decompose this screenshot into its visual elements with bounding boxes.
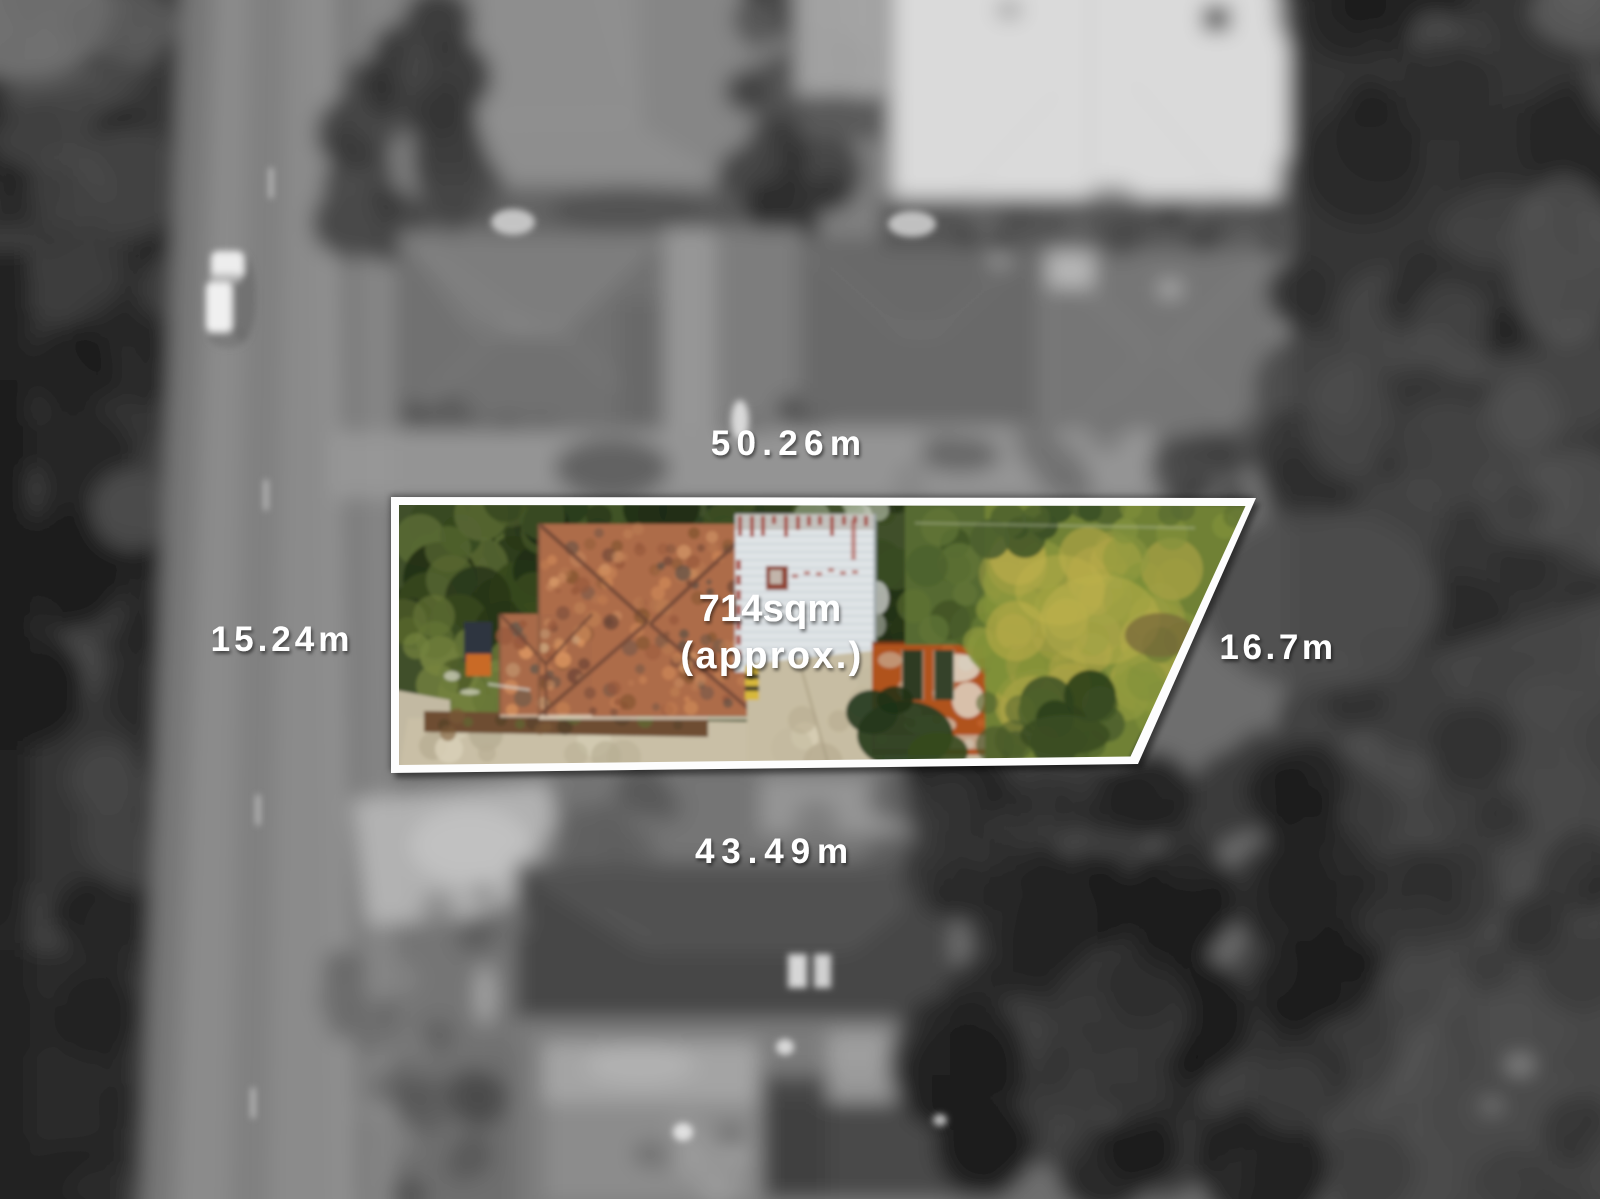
svg-text:50.26m: 50.26m: [711, 424, 868, 463]
svg-text:(approx.): (approx.): [680, 635, 863, 677]
svg-text:714sqm: 714sqm: [699, 588, 842, 630]
svg-text:43.49m: 43.49m: [695, 832, 855, 871]
svg-text:15.24m: 15.24m: [211, 620, 354, 659]
svg-text:16.7m: 16.7m: [1219, 628, 1336, 667]
